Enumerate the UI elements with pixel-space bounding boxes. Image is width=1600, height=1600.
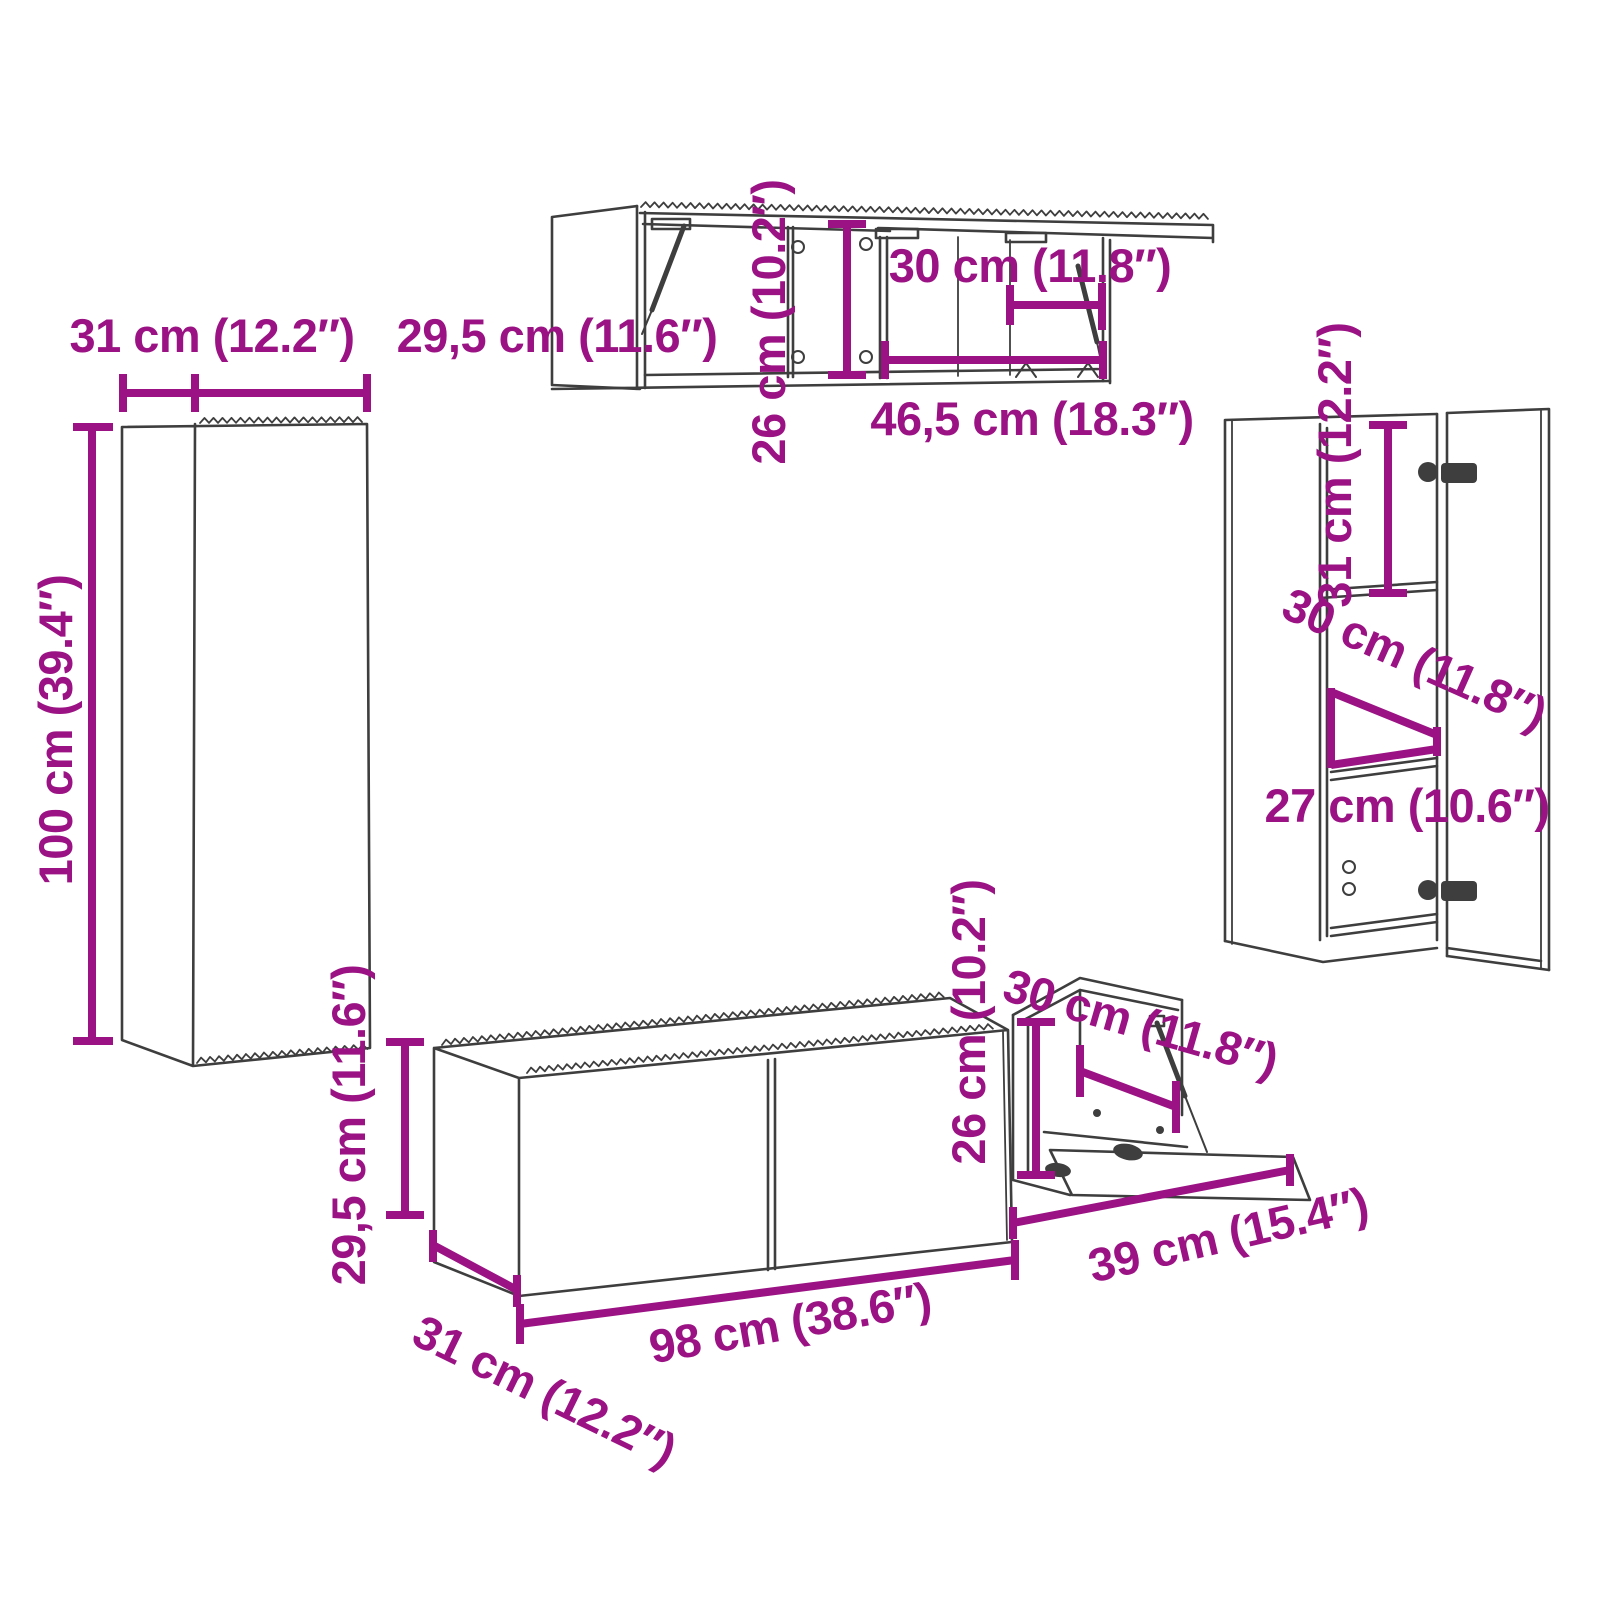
dimension-label-top-height: 26 cm (10.2″) (742, 179, 795, 464)
shelf-pin-holes-icon (1343, 861, 1355, 895)
dimension-label-right-upper-height: 31 cm (12.2″) (1308, 322, 1361, 607)
screw-holes-icon (1093, 1109, 1164, 1134)
dimension-label-top-width: 46,5 cm (18.3″) (870, 392, 1193, 445)
dim-line-left-width-depth (123, 374, 367, 412)
dimension-label-flap-width: 39 cm (15.4″) (1083, 1177, 1373, 1293)
diagram-svg: 31 cm (12.2″) 29,5 cm (11.6″) 100 cm (39… (0, 0, 1600, 1600)
dim-line-flap-height (1017, 1022, 1055, 1175)
hinge-icon (1044, 1141, 1144, 1179)
serration-texture (200, 417, 362, 423)
dim-line-bench-depth (433, 1230, 517, 1307)
serration-texture (641, 202, 1208, 219)
tv-bench-drawing (434, 993, 1012, 1297)
furniture-dimension-diagram: 31 cm (12.2″) 29,5 cm (11.6″) 100 cm (39… (0, 0, 1600, 1600)
dim-line-flap-depth (1080, 1045, 1176, 1133)
dim-line-bench-height (386, 1042, 424, 1215)
shelf-pin-holes-icon (792, 238, 872, 363)
dimension-label-top-inner-width: 30 cm (11.8″) (889, 239, 1172, 292)
dimension-label-left-height: 100 cm (39.4″) (29, 575, 82, 886)
dim-line-right-depth (1331, 688, 1437, 768)
dimension-label-bench-height: 29,5 cm (11.6″) (322, 965, 375, 1286)
dim-line-top-width (885, 341, 1103, 379)
dimension-label-left-depth: 29,5 cm (11.6″) (397, 309, 718, 362)
dim-line-right-upper-height (1369, 425, 1407, 593)
dimension-label-left-width: 31 cm (12.2″) (69, 309, 354, 362)
dimension-label-flap-height: 26 cm (10.2″) (942, 879, 995, 1164)
serration-texture (442, 993, 944, 1046)
dimension-label-bench-depth: 31 cm (12.2″) (405, 1304, 685, 1477)
dimension-label-right-depth: 30 cm (11.8″) (1275, 577, 1555, 740)
dimension-label-right-lower-height: 27 cm (10.6″) (1264, 779, 1549, 832)
